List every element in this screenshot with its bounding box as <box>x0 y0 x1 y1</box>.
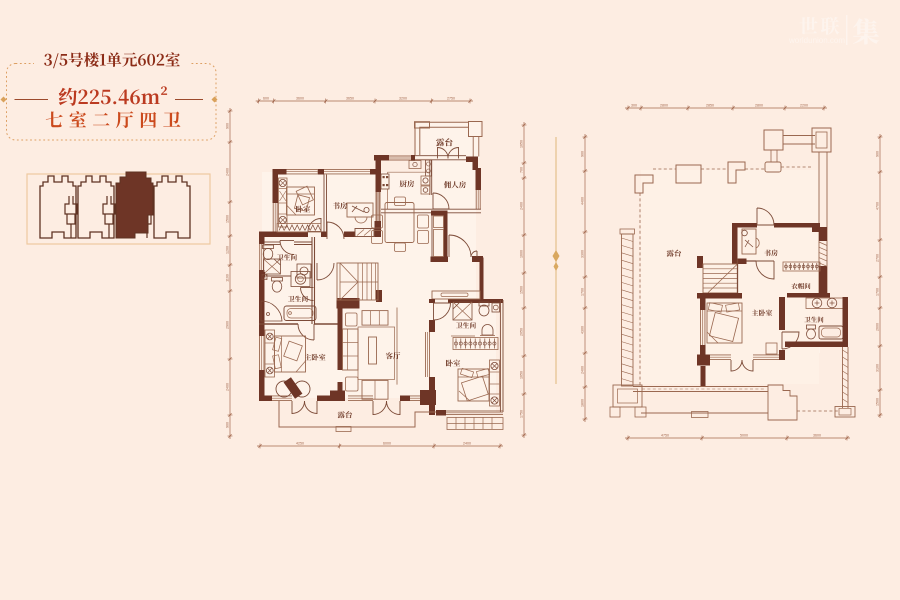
svg-text:1100: 1100 <box>226 274 230 282</box>
svg-text:6000: 6000 <box>383 442 391 446</box>
svg-text:1650: 1650 <box>520 140 524 148</box>
svg-text:3600: 3600 <box>296 97 304 101</box>
svg-text:2700: 2700 <box>876 254 880 262</box>
svg-text:3100: 3100 <box>876 364 880 372</box>
svg-text:4700: 4700 <box>876 202 880 210</box>
svg-text:4750: 4750 <box>661 434 669 438</box>
svg-text:3200: 3200 <box>399 97 407 101</box>
svg-text:4300: 4300 <box>581 326 585 334</box>
svg-text:4400: 4400 <box>581 197 585 205</box>
svg-text:900: 900 <box>581 151 585 157</box>
svg-text:3300: 3300 <box>581 250 585 258</box>
svg-text:1800: 1800 <box>581 399 585 407</box>
svg-text:2900: 2900 <box>226 321 230 329</box>
svg-text:2400: 2400 <box>463 442 471 446</box>
svg-text:1700: 1700 <box>581 288 585 296</box>
svg-text:3650: 3650 <box>346 97 354 101</box>
svg-text:900: 900 <box>226 422 230 428</box>
svg-text:1750: 1750 <box>520 410 524 418</box>
svg-text:2800: 2800 <box>755 104 763 108</box>
svg-text:1650: 1650 <box>520 371 524 379</box>
svg-text:2600: 2600 <box>876 323 880 331</box>
svg-text:1500: 1500 <box>520 286 524 294</box>
svg-text:700: 700 <box>520 167 524 173</box>
svg-text:900: 900 <box>876 151 880 157</box>
svg-text:2400: 2400 <box>581 366 585 374</box>
svg-text:900: 900 <box>226 123 230 129</box>
svg-text:2400: 2400 <box>226 383 230 391</box>
svg-text:2200: 2200 <box>800 104 808 108</box>
svg-text:worldunion.com: worldunion.com <box>788 36 845 45</box>
svg-text:2050: 2050 <box>520 328 524 336</box>
svg-text:1700: 1700 <box>876 288 880 296</box>
svg-text:1500: 1500 <box>226 215 230 223</box>
svg-text:4250: 4250 <box>296 442 304 446</box>
svg-text:600: 600 <box>263 97 269 101</box>
svg-text:2800: 2800 <box>660 104 668 108</box>
svg-text:300: 300 <box>631 104 637 108</box>
svg-text:5000: 5000 <box>740 434 748 438</box>
svg-text:1500: 1500 <box>876 398 880 406</box>
svg-text:2850: 2850 <box>706 104 714 108</box>
svg-text:1600: 1600 <box>520 250 524 258</box>
svg-text:2400: 2400 <box>520 202 524 210</box>
svg-text:1200: 1200 <box>226 246 230 254</box>
svg-text:2400: 2400 <box>226 168 230 176</box>
svg-text:2750: 2750 <box>447 97 455 101</box>
svg-text:3600: 3600 <box>813 434 821 438</box>
